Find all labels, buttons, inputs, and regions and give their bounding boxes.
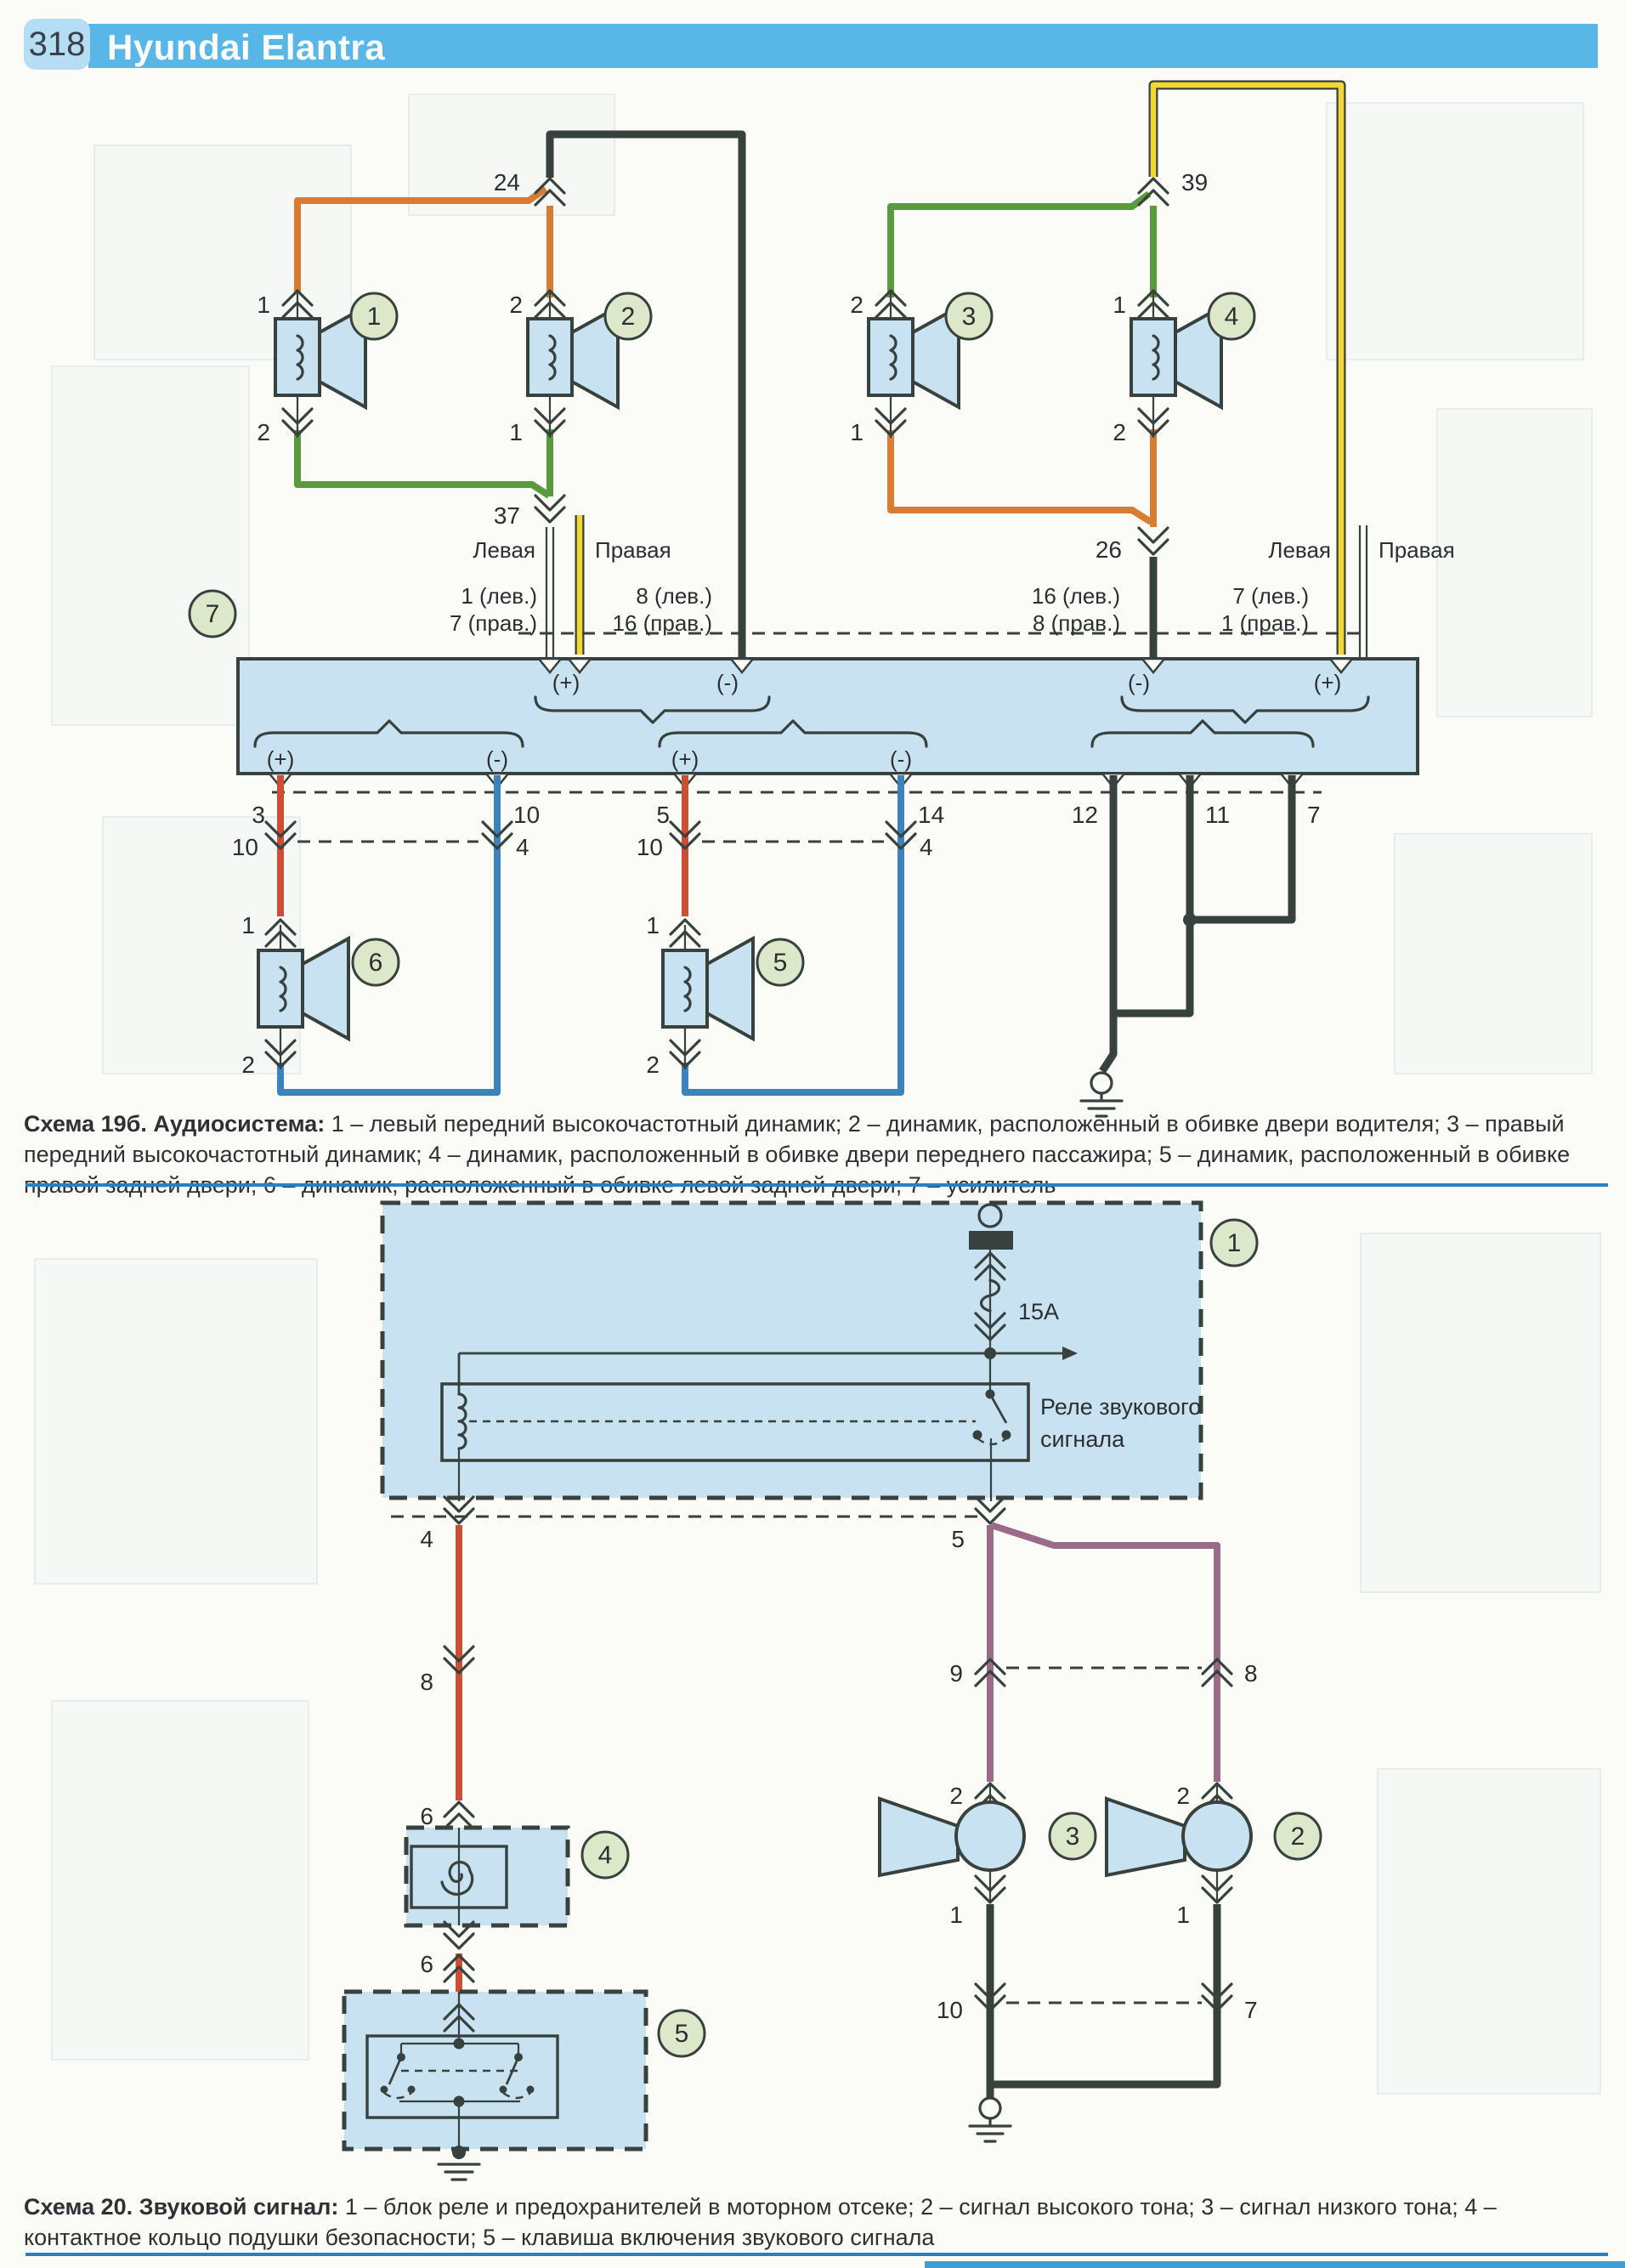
junction-dot (1183, 913, 1197, 927)
component-badge-number: 3 (1066, 1823, 1080, 1851)
polarity-label: (+) (267, 746, 295, 772)
contact-dot (973, 1431, 982, 1440)
ground-icon (970, 2098, 1011, 2141)
connector-number-label: 26 (1096, 536, 1122, 563)
terminal-block-icon (969, 1231, 1013, 1250)
pin-label: 2 (241, 1052, 255, 1078)
contact-dot (500, 2086, 507, 2094)
amp-pin-label: 7 (прав.) (450, 610, 537, 636)
connector-number-label: 10 (232, 834, 258, 860)
amp-pin-number: 10 (513, 802, 540, 828)
contact-dot (1002, 1431, 1011, 1440)
polarity-label: (+) (1314, 670, 1342, 695)
wire-ground-12 (1102, 775, 1113, 1071)
pin-label: 2 (257, 419, 270, 445)
pin-label: 1 (509, 419, 523, 445)
audio-system-diagram: (+) (-) (-) (+) (+) (-) (+) (-) (190, 85, 1455, 1116)
page-title: Hyundai Elantra (107, 27, 385, 68)
amp-pin-label: 16 (прав.) (613, 610, 713, 636)
diagram2-caption: Схема 20. Звуковой сигнал: 1 – блок реле… (24, 2191, 1610, 2253)
component-badge-number: 1 (367, 303, 382, 331)
connector-chevron-icon (444, 1802, 473, 1829)
pin-label: 2 (509, 292, 523, 318)
amp-pin-label: 8 (лев.) (636, 583, 712, 609)
wire-orange-sp1 (297, 189, 546, 293)
section-divider (25, 2253, 1608, 2256)
connector-chevron-icon (1139, 179, 1168, 205)
connector-chevron-icon (535, 496, 564, 522)
amp-pin-number: 7 (1307, 802, 1321, 828)
contact-dot (408, 2086, 416, 2094)
amp-pin-number: 11 (1205, 802, 1230, 828)
component-badge-number: 6 (369, 949, 383, 977)
component-badge-number: 5 (773, 949, 788, 977)
amp-pin-label: 7 (лев.) (1232, 583, 1309, 609)
caption-title: Схема 20. Звуковой сигнал: (24, 2194, 338, 2220)
ground-dot (452, 2146, 466, 2159)
wire-ground-7 (1192, 775, 1292, 920)
horn-diagram: 1 15A Реле звукового сигнала 4 5 (344, 1203, 1321, 2180)
channel-label: Левая (1268, 537, 1331, 563)
polarity-label: (-) (890, 746, 912, 772)
pin-label: 4 (420, 1526, 433, 1552)
amp-pin-label: 8 (прав.) (1033, 610, 1120, 636)
amp-pin-label: 1 (лев.) (461, 583, 537, 609)
pin-label: 1 (241, 912, 255, 938)
component-badge-number: 2 (621, 303, 636, 331)
pin-label: 1 (1113, 292, 1126, 318)
component-badge-number: 7 (206, 600, 220, 628)
pin-label: 2 (646, 1052, 660, 1078)
pin-label: 5 (951, 1526, 965, 1552)
pin-label: 1 (1176, 1902, 1190, 1928)
clock-spring-box (406, 1828, 568, 1925)
connector-number-label: 7 (1244, 1997, 1258, 2023)
contact-dot (381, 2086, 388, 2094)
polarity-label: (-) (486, 746, 508, 772)
polarity-label: (-) (716, 670, 739, 695)
polarity-label: (-) (1128, 670, 1150, 695)
connector-number-label: 10 (937, 1997, 963, 2023)
connector-number-label: 37 (494, 502, 520, 529)
wire-purple-horn-high (991, 1525, 1217, 1782)
pin-label: 1 (850, 419, 863, 445)
connector-number-label: 4 (920, 834, 933, 860)
wire-horn-ground-right (993, 1904, 1217, 2084)
pin-label: 1 (646, 912, 660, 938)
channel-label: Левая (473, 537, 535, 563)
wire-blue-sp5 (685, 775, 901, 1092)
amp-pin-label: 16 (лев.) (1032, 583, 1120, 609)
next-page-edge (925, 2261, 1625, 2268)
component-badge-number: 4 (1225, 303, 1239, 331)
contact-dot (527, 2086, 535, 2094)
amp-pin-number: 12 (1072, 802, 1098, 828)
connector-number-label: 8 (420, 1669, 433, 1695)
connector-number-label: 24 (494, 169, 520, 196)
amp-pin-number: 5 (656, 802, 670, 828)
section-divider (25, 1183, 1608, 1187)
connector-number-label: 39 (1181, 169, 1208, 196)
amplifier-box (238, 659, 1418, 774)
component-badge-number: 3 (962, 303, 977, 331)
connector-number-label: 10 (637, 834, 663, 860)
amp-pin-label: 1 (прав.) (1221, 610, 1309, 636)
component-badge-number: 1 (1227, 1229, 1242, 1257)
manual-page: { "header": {"page": "318", "title": "Hy… (0, 0, 1625, 2268)
connector-number-label: 8 (1244, 1660, 1258, 1687)
amp-pin-number: 14 (918, 802, 944, 828)
connector-chevron-icon (1139, 528, 1168, 554)
connector-number-label: 4 (516, 834, 529, 860)
connector-number-label: 9 (949, 1660, 963, 1687)
pin-label: 2 (1113, 419, 1126, 445)
pin-label: 2 (1176, 1783, 1190, 1809)
page-number-badge: 318 (24, 19, 90, 70)
channel-label: Правая (1379, 537, 1455, 563)
component-badge-number: 2 (1291, 1823, 1305, 1851)
fuse-rating-label: 15A (1018, 1299, 1059, 1324)
component-badge-number: 5 (675, 2020, 689, 2048)
caption-title: Схема 19б. Аудиосистема: (24, 1111, 325, 1137)
channel-label: Правая (595, 537, 671, 563)
connector-number-label: 6 (420, 1803, 433, 1829)
connector-chevron-icon (444, 1922, 473, 1948)
wire-green-right-loop (891, 194, 1153, 298)
relay-fuse-block (382, 1203, 1201, 1498)
relay-label: сигнала (1040, 1426, 1125, 1452)
horn-switch-box (344, 1992, 646, 2149)
wire-ground-11 (1115, 775, 1190, 1013)
pin-label: 1 (949, 1902, 963, 1928)
pin-label: 1 (257, 292, 270, 318)
polarity-label: (+) (552, 670, 580, 695)
component-badge-number: 4 (598, 1841, 613, 1869)
wire-blue-sp6 (280, 775, 497, 1092)
pin-label: 2 (949, 1783, 963, 1809)
amp-pin-number: 3 (252, 802, 265, 828)
connector-number-label: 6 (420, 1951, 433, 1977)
relay-label: Реле звукового (1040, 1394, 1201, 1420)
polarity-label: (+) (671, 746, 699, 772)
pin-label: 2 (850, 292, 863, 318)
